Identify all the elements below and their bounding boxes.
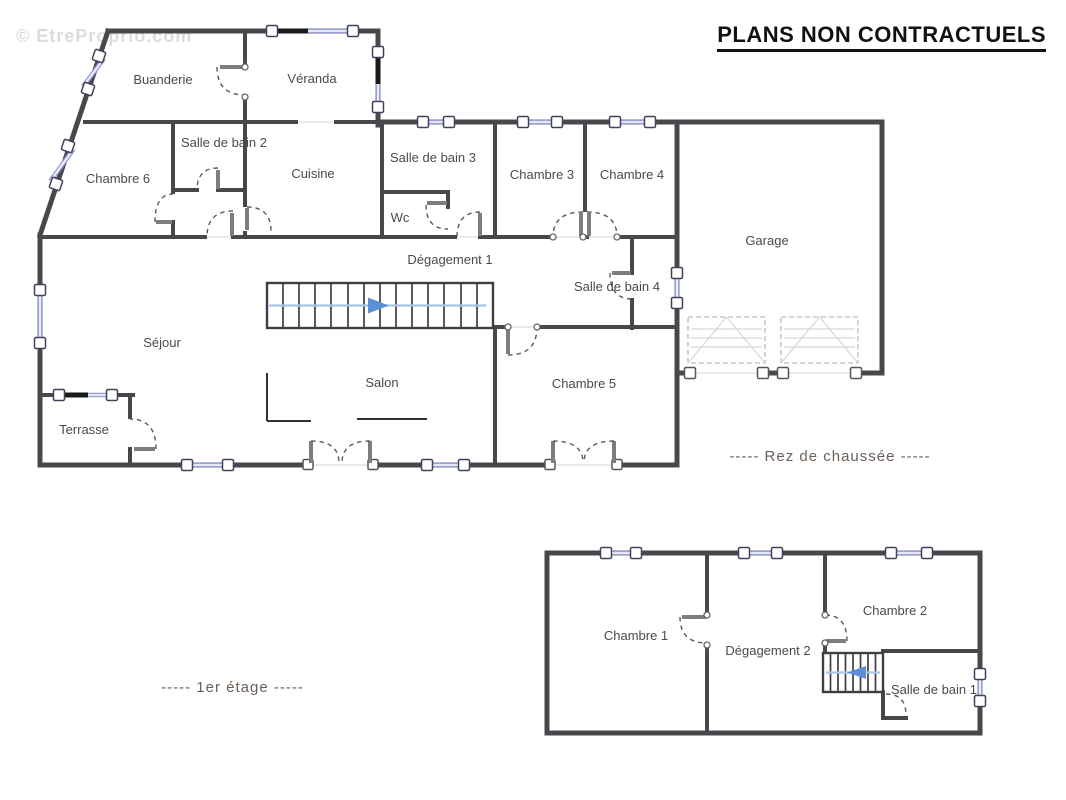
room-label-chambre-5: Chambre 5: [552, 376, 616, 391]
ground-outer-walls: [40, 31, 882, 465]
room-label-degagement-1: Dégagement 1: [407, 252, 492, 267]
floor-plan-page: © EtreProprio.com PLANS NON CONTRACTUELS: [0, 0, 1066, 800]
room-label-salle-de-bain-2: Salle de bain 2: [181, 135, 267, 150]
room-label-sejour: Séjour: [143, 335, 181, 350]
room-label-salle-de-bain-3: Salle de bain 3: [390, 150, 476, 165]
room-label-chambre-4: Chambre 4: [600, 167, 664, 182]
staircase-first: [823, 653, 883, 692]
room-label-degagement-2: Dégagement 2: [725, 643, 810, 658]
room-label-wc: Wc: [391, 210, 410, 225]
room-label-cuisine: Cuisine: [291, 166, 334, 181]
ground-floor-plan: Buanderie Véranda Salle de bain 2 Chambr…: [35, 26, 883, 471]
caption-1er-etage: ----- 1er étage -----: [135, 679, 330, 696]
room-label-chambre-1: Chambre 1: [604, 628, 668, 643]
first-door-openings: [707, 615, 825, 643]
staircase-ground: [267, 283, 493, 328]
sofa-outline: [267, 373, 427, 421]
room-label-garage: Garage: [745, 233, 788, 248]
room-label-chambre-2: Chambre 2: [863, 603, 927, 618]
garage-door-right: [781, 317, 858, 363]
room-label-buanderie: Buanderie: [133, 72, 192, 87]
room-label-terrasse: Terrasse: [59, 422, 109, 437]
room-label-veranda: Véranda: [287, 71, 337, 86]
room-label-chambre-6: Chambre 6: [86, 171, 150, 186]
caption-rez-de-chaussee: ----- Rez de chaussée -----: [700, 448, 960, 465]
first-floor-plan: Chambre 1 Dégagement 2 Chambre 2 Salle d…: [547, 548, 986, 734]
garage-door-left: [688, 317, 765, 363]
room-label-chambre-3: Chambre 3: [510, 167, 574, 182]
room-label-salle-de-bain-4: Salle de bain 4: [574, 279, 660, 294]
room-label-salle-de-bain-1: Salle de bain 1: [891, 682, 977, 697]
ground-interior-walls: [40, 31, 677, 465]
room-label-salon: Salon: [365, 375, 398, 390]
